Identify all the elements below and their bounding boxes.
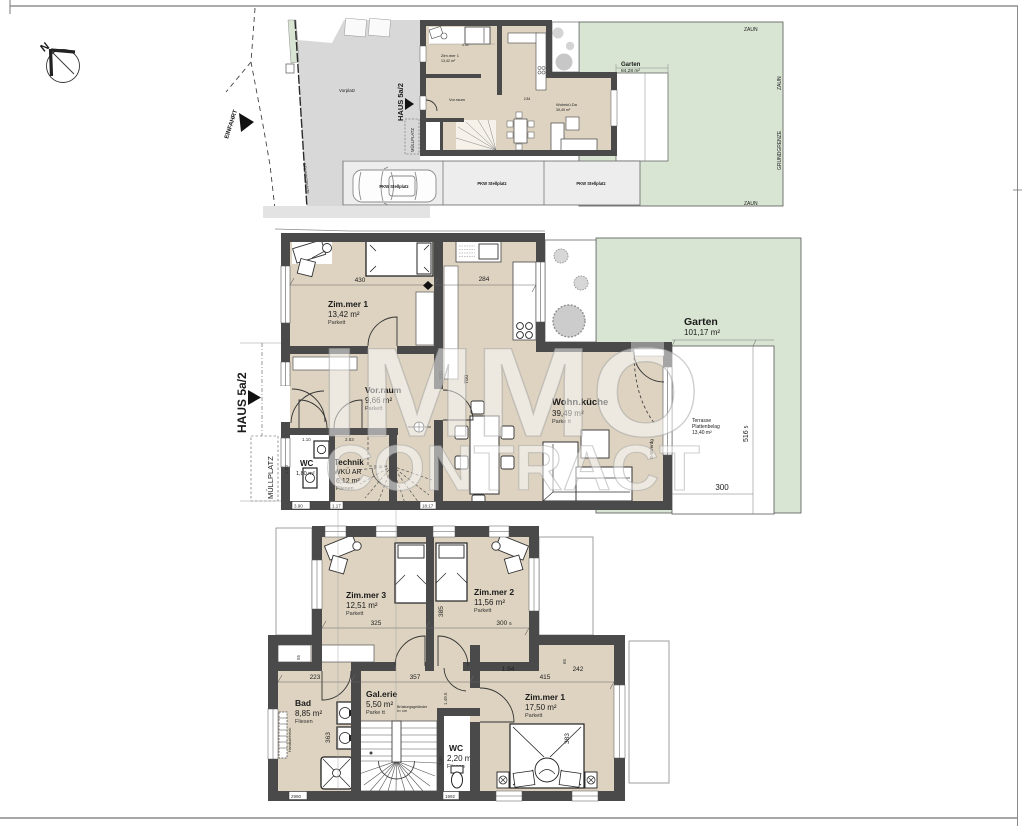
- svg-text:HAUS 5a/2: HAUS 5a/2: [235, 372, 249, 433]
- svg-text:Vorplatz: Vorplatz: [339, 88, 356, 93]
- svg-text:4.30: 4.30: [462, 43, 469, 47]
- svg-text:ZAUN: ZAUN: [777, 76, 783, 90]
- svg-text:1.80: 1.80: [284, 465, 289, 474]
- svg-text:Zim.mer 1: Zim.mer 1: [328, 299, 368, 309]
- svg-text:PKW Stellplatz: PKW Stellplatz: [379, 184, 408, 189]
- svg-text:Vor.raum: Vor.raum: [449, 97, 466, 102]
- svg-text:8,85 m²: 8,85 m²: [295, 709, 322, 718]
- svg-text:ZAUN: ZAUN: [744, 201, 758, 207]
- svg-text:Bad: Bad: [295, 698, 311, 708]
- svg-text:Handtuchheizk.: Handtuchheizk.: [288, 727, 292, 752]
- svg-text:223: 223: [310, 674, 321, 681]
- svg-text:1992: 1992: [445, 794, 456, 799]
- svg-text:55: 55: [296, 654, 301, 660]
- svg-text:Zim.mer 1: Zim.mer 1: [525, 692, 565, 702]
- svg-text:ZAUN: ZAUN: [744, 27, 758, 33]
- svg-text:Parkett: Parkett: [474, 608, 492, 614]
- svg-text:39,49 m²: 39,49 m²: [556, 108, 571, 112]
- svg-text:EINFAHRT: EINFAHRT: [224, 109, 239, 140]
- svg-text:1.94: 1.94: [502, 666, 515, 673]
- svg-text:Parkett: Parkett: [525, 713, 543, 719]
- svg-text:18.17: 18.17: [422, 504, 434, 509]
- svg-text:GRUNDGRENZE: GRUNDGRENZE: [777, 130, 783, 170]
- svg-text:Zim.mer 2: Zim.mer 2: [474, 587, 514, 597]
- svg-text:385: 385: [438, 606, 445, 617]
- svg-text:516 5: 516 5: [743, 425, 750, 442]
- svg-text:1,80 m²: 1,80 m²: [296, 471, 315, 477]
- svg-text:325: 325: [371, 620, 382, 627]
- svg-text:300: 300: [715, 483, 729, 492]
- svg-text:1.10: 1.10: [302, 437, 311, 442]
- svg-text:3.90: 3.90: [294, 504, 303, 509]
- svg-text:Fliesen: Fliesen: [295, 719, 313, 725]
- svg-text:13,42 m²: 13,42 m²: [441, 59, 456, 63]
- svg-text:MÜLLPLATZ: MÜLLPLATZ: [266, 456, 275, 499]
- svg-text:17,50 m²: 17,50 m²: [525, 703, 557, 712]
- svg-text:357: 357: [410, 674, 421, 681]
- svg-text:MÜLLPLATZ: MÜLLPLATZ: [410, 128, 415, 152]
- svg-text:11,56 m²: 11,56 m²: [474, 598, 505, 607]
- svg-text:383: 383: [564, 733, 571, 744]
- svg-text:65: 65: [562, 658, 567, 664]
- svg-text:5,50 m²: 5,50 m²: [366, 700, 393, 709]
- svg-text:12,51 m²: 12,51 m²: [346, 601, 378, 610]
- svg-text:1.17: 1.17: [332, 504, 341, 509]
- svg-text:h= cm: h= cm: [397, 709, 407, 713]
- svg-text:Zim.mer 3: Zim.mer 3: [346, 590, 386, 600]
- svg-text:242: 242: [573, 666, 584, 673]
- svg-text:Parke tt: Parke tt: [366, 710, 385, 716]
- svg-text:363: 363: [325, 732, 332, 743]
- svg-text:Gal.erie: Gal.erie: [366, 689, 397, 699]
- svg-text:1.49.5: 1.49.5: [443, 692, 448, 705]
- svg-text:Garten: Garten: [621, 62, 641, 68]
- svg-text:13,42 m²: 13,42 m²: [328, 310, 360, 319]
- svg-text:84,28 m²: 84,28 m²: [621, 68, 640, 74]
- svg-text:WC: WC: [449, 743, 463, 753]
- svg-text:415: 415: [540, 674, 551, 681]
- svg-text:PKW Stellplatz: PKW Stellplatz: [576, 181, 605, 186]
- svg-text:2.84: 2.84: [524, 97, 531, 101]
- svg-text:430: 430: [355, 277, 366, 284]
- svg-text:300 5: 300 5: [496, 620, 512, 627]
- svg-text:Zim.mer 1: Zim.mer 1: [441, 53, 460, 58]
- svg-text:WC: WC: [300, 459, 314, 468]
- svg-text:HAUS 5a/2: HAUS 5a/2: [396, 83, 405, 121]
- svg-text:Wohnkü.Da: Wohnkü.Da: [556, 102, 578, 107]
- svg-text:2990: 2990: [291, 794, 302, 799]
- svg-text:CONTRACT: CONTRACT: [325, 432, 700, 504]
- svg-text:PKW Stellplatz: PKW Stellplatz: [477, 181, 506, 186]
- svg-text:284: 284: [479, 276, 490, 283]
- svg-text:Parkett: Parkett: [346, 611, 364, 617]
- svg-text:2.50: 2.50: [438, 756, 443, 765]
